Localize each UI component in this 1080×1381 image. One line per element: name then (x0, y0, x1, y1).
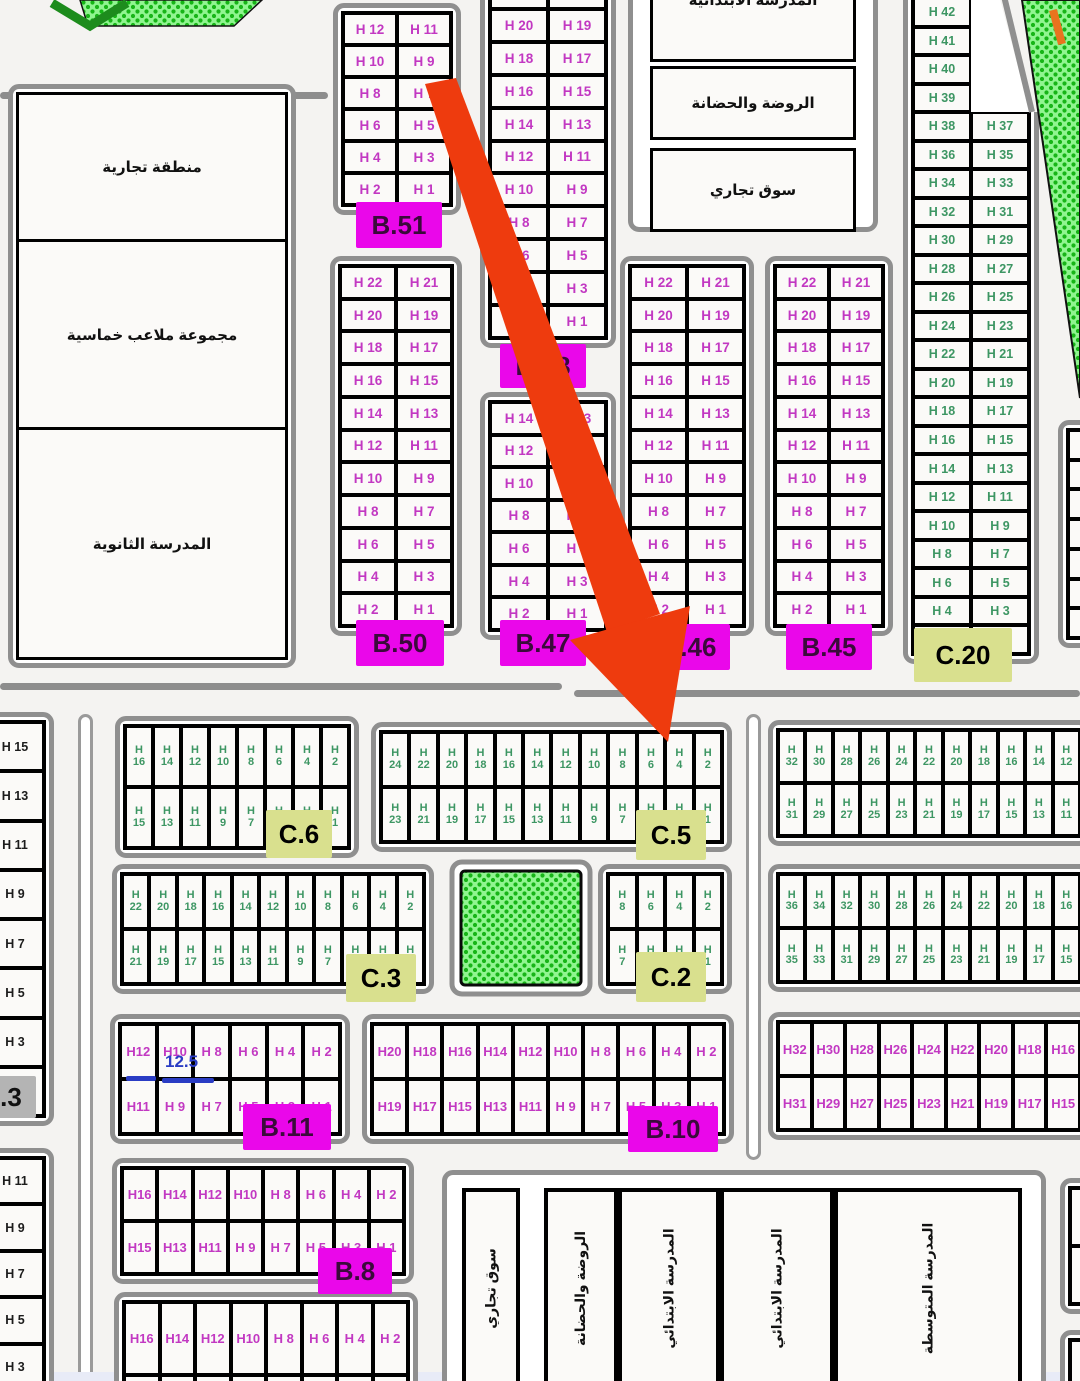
plot-cell: H 11 (971, 483, 1029, 512)
parcel-kindergarten-top: الروضة والحضانة (650, 66, 856, 140)
plot-cell (1068, 579, 1080, 609)
block-label-c2: C.2 (636, 952, 706, 1002)
plot-cell: H29 (860, 928, 887, 982)
plot-cell: H 19 (687, 299, 744, 332)
plot-cell: H 6 (618, 1024, 653, 1079)
plot-cell: H 15 (971, 426, 1029, 455)
parcel-label: منطقة تجارية (102, 158, 202, 176)
block-c20: H 42H 41H 40H 39H 38H 37H 36H 35H 34H 33… (903, 0, 1039, 664)
plot-cell: H 6 (230, 1024, 267, 1079)
plot-cell: H 12 (630, 430, 687, 463)
plot-cell: H 23 (971, 312, 1029, 341)
block-edge-right-bottom-a (1060, 1178, 1080, 1314)
plot-cell: H21 (122, 929, 149, 984)
plot-cell: H28 (833, 730, 860, 783)
plot-cell: H 20 (775, 299, 829, 332)
plot-cell: H 11 (397, 13, 451, 45)
plot-cell: H23 (912, 1076, 946, 1130)
plot-cell: H 19 (829, 299, 883, 332)
plot-cell: H28 (888, 874, 915, 928)
block-label-b46: B.46 (648, 624, 730, 670)
parcel-commercial-area: منطقة تجارية (19, 95, 285, 239)
plot-cell: H 3 (687, 561, 744, 594)
plot-cell: H7 (608, 787, 636, 842)
plot-cell: H 16 (490, 75, 548, 108)
plot-cell: H13 (478, 1079, 513, 1134)
plot-cell: H25 (915, 928, 942, 982)
plot-cell: H 8 (490, 500, 548, 533)
plot-cell: H 2 (343, 173, 397, 205)
plot-cell: H 34 (913, 169, 971, 198)
plot-cell: H13 (157, 1221, 192, 1274)
plot-cell: H 3 (0, 1344, 44, 1381)
plot-cell: H19 (979, 1076, 1013, 1130)
plot-cell: H17 (1013, 1076, 1047, 1130)
plot-cell: H 20 (630, 299, 687, 332)
block-band2-right: H36H34H32H30H28H26H24H22H20H18H16H35H33H… (768, 864, 1080, 992)
plot-cell: H 9 (396, 462, 452, 495)
plot-cell: H 2 (373, 1302, 409, 1375)
block-grid-b46: H 22H 21H 20H 19H 18H 17H 16H 15H 14H 13… (628, 264, 746, 628)
plot-cell: H31 (833, 928, 860, 982)
block-b8-south: H16H14H12H10H 8H 6H 4H 2 (114, 1292, 418, 1381)
plot-cell: H 18 (775, 331, 829, 364)
plot-cell: H 9 (971, 511, 1029, 540)
subdivision-plan: منطقة تجارية مجموعة ملاعب خماسية المدرسة… (0, 0, 1080, 1381)
plot-cell: H22 (970, 874, 997, 928)
block-label-b45: B.45 (786, 624, 872, 670)
block-edge-right-bottom-b (1060, 1330, 1080, 1381)
plot-cell: H22 (122, 874, 149, 929)
plot-cell: H 9 (548, 1079, 583, 1134)
plot-cell: H16 (1053, 874, 1080, 928)
plot-cell: H 5 (548, 532, 606, 565)
plot-cell: H16 (442, 1024, 477, 1079)
plot-cell: H 12 (343, 13, 397, 45)
plot-cell: H 35 (971, 141, 1029, 170)
plot-cell: H 20 (490, 9, 548, 42)
plot-cell: H30 (812, 1022, 846, 1076)
plot-cell: H19 (372, 1079, 407, 1134)
plot-cell: H32 (833, 874, 860, 928)
plot-cell: H 13 (396, 397, 452, 430)
plot-cell (337, 1375, 373, 1381)
block-label-b50: B.50 (356, 620, 444, 666)
plot-cell: H 20 (340, 299, 396, 332)
plot-cell: H8 (237, 726, 265, 787)
plot-cell: H 3 (829, 561, 883, 594)
plot-cell: H 18 (913, 397, 971, 426)
plot-cell: H 8 (263, 1168, 298, 1221)
plot-cell: H17 (970, 783, 997, 836)
plot-cell: H 36 (913, 141, 971, 170)
plot-cell: H 5 (687, 528, 744, 561)
plot-cell: H 10 (490, 467, 548, 500)
plot-cell: H 16 (913, 426, 971, 455)
plot-cell: H 2 (689, 1024, 724, 1079)
plot-cell: H30 (860, 874, 887, 928)
plot-cell: H 21 (829, 266, 883, 299)
plot-cell: H 18 (340, 331, 396, 364)
plot-cell (160, 1375, 196, 1381)
plot-cell: H 4 (654, 1024, 689, 1079)
plot-cell: H29 (812, 1076, 846, 1130)
block-label-c6: C.6 (266, 810, 332, 858)
plot-cell: H12 (551, 732, 579, 787)
plot-cell: H8 (314, 874, 341, 929)
school-parcel-label: المدرسة المتوسطة (919, 1222, 936, 1354)
plot-cell: H 9 (0, 1204, 44, 1250)
plot-cell: H 8 (913, 540, 971, 569)
plot-cell: H17 (407, 1079, 442, 1134)
block-b50: H 22H 21H 20H 19H 18H 17H 16H 15H 14H 13… (330, 256, 462, 636)
plot-cell: H7 (237, 787, 265, 848)
plot-cell: H17 (466, 787, 494, 842)
block-grid-b45: H 22H 21H 20H 19H 18H 17H 16H 15H 14H 13… (773, 264, 885, 628)
plot-cell: H 30 (913, 226, 971, 255)
plot-cell: H 16 (340, 364, 396, 397)
plot-cell: H 4 (630, 561, 687, 594)
plot-cell: H10 (287, 874, 314, 929)
plot-cell: H32 (778, 730, 805, 783)
plot-cell: H 38 (913, 112, 971, 141)
plot-cell: H18 (466, 732, 494, 787)
plot-cell: H30 (805, 730, 832, 783)
block-label-b11: B.11 (243, 1104, 331, 1150)
plot-cell: H 8 (583, 1024, 618, 1079)
block-left-col-top: H 15H 13H 11H 9H 7H 5H 3H 1 (0, 712, 54, 1126)
plot-cell: H19 (998, 928, 1025, 982)
plot-cell: H 2 (630, 593, 687, 626)
plot-cell: H 7 (829, 495, 883, 528)
plot-cell: H 3 (548, 272, 606, 305)
plot-cell: H23 (888, 783, 915, 836)
block-b48: H 22H 21H 20H 19H 18H 17H 16H 15H 14H 13… (480, 0, 616, 348)
plot-cell: H17 (1025, 928, 1052, 982)
plot-cell: H13 (523, 787, 551, 842)
plot-cell: H 11 (548, 435, 606, 468)
plot-cell: H 17 (548, 42, 606, 75)
plot-cell: H 14 (490, 108, 548, 141)
plot-cell: H 5 (548, 239, 606, 272)
plot-cell: H 5 (0, 968, 44, 1017)
plot-cell: H14 (232, 874, 259, 929)
plot-cell: H 4 (913, 597, 971, 626)
plot-cell: H 19 (971, 369, 1029, 398)
plot-cell: H27 (845, 1076, 879, 1130)
plot-cell: H 6 (775, 528, 829, 561)
plot-cell: H 14 (913, 454, 971, 483)
plot-cell: H 5 (396, 528, 452, 561)
plot-cell: H 22 (630, 266, 687, 299)
plot-cell: H 15 (396, 364, 452, 397)
plot-cell: H 9 (0, 870, 44, 919)
block-grid-band1-right: H32H30H28H26H24H22H20H18H16H14H12H31H29H… (776, 728, 1080, 838)
plot-cell: H10 (231, 1302, 267, 1375)
plot-cell: H 19 (396, 299, 452, 332)
block-label-c3: C.3 (346, 954, 416, 1002)
plot-cell: H 6 (298, 1168, 333, 1221)
plot-cell: H4 (665, 874, 694, 929)
plot-cell: H 4 (340, 561, 396, 594)
plot-cell: H6 (637, 732, 665, 787)
plot-cell: H 3 (548, 565, 606, 598)
plot-cell: H24 (912, 1022, 946, 1076)
block-edge-right-top (1058, 420, 1080, 648)
plot-cell: H 22 (340, 266, 396, 299)
plot-cell: H 8 (193, 1024, 230, 1079)
park-curb (452, 862, 590, 994)
plot-cell: H26 (860, 730, 887, 783)
plot-cell: H 40 (913, 55, 971, 84)
plot-cell: H 4 (775, 561, 829, 594)
block-label-b51: B.51 (356, 202, 442, 248)
plot-cell: H 15 (0, 722, 44, 771)
parcel-label: سوق تجاري (710, 181, 796, 199)
plot-cell: H 11 (396, 430, 452, 463)
plot-cell: H20 (149, 874, 176, 929)
plot-cell: H2 (694, 732, 722, 787)
parcel-label: مجموعة ملاعب خماسية (67, 326, 238, 344)
plot-cell: H15 (442, 1079, 477, 1134)
block-label-c20: C.20 (914, 628, 1012, 682)
school-parcel-4: المدرسة المتوسطة (834, 1188, 1022, 1381)
plot-cell (266, 1375, 302, 1381)
plot-cell: H 33 (971, 169, 1029, 198)
plot-cell: H 18 (490, 42, 548, 75)
plot-cell: H 11 (687, 430, 744, 463)
plot-cell: H 12 (490, 435, 548, 468)
plot-cell: H 13 (829, 397, 883, 430)
school-parcel-0: سوق تجاري (462, 1188, 520, 1381)
plot-cell: H15 (998, 783, 1025, 836)
plot-cell: H27 (888, 928, 915, 982)
plot-cell: H 7 (0, 1251, 44, 1297)
plot-cell: H11 (120, 1079, 157, 1134)
plot-cell: H 11 (0, 1158, 44, 1204)
plot-cell (1070, 1246, 1080, 1304)
plot-cell: H10 (580, 732, 608, 787)
plot-cell: H28 (845, 1022, 879, 1076)
plot-cell: H 8 (630, 495, 687, 528)
plot-cell: H7 (314, 929, 341, 984)
plot-cell: H16 (1046, 1022, 1080, 1076)
plot-cell: H9 (209, 787, 237, 848)
block-b45: H 22H 21H 20H 19H 18H 17H 16H 15H 14H 13… (765, 256, 893, 636)
plot-cell: H15 (495, 787, 523, 842)
plot-cell: H16 (204, 874, 231, 929)
plot-cell: H24 (381, 732, 409, 787)
parcel-secondary-school: المدرسة الثانوية (19, 427, 285, 657)
plot-cell: H32 (778, 1022, 812, 1076)
plot-cell: H12 (181, 726, 209, 787)
plot-cell: H16 (998, 730, 1025, 783)
plot-cell: H 9 (548, 467, 606, 500)
plot-cell: H 28 (913, 255, 971, 284)
plot-cell: H 2 (490, 305, 548, 338)
plot-cell: H29 (805, 783, 832, 836)
plot-cell: H 20 (913, 369, 971, 398)
plot-cell: H19 (149, 929, 176, 984)
plot-cell: H 12 (913, 483, 971, 512)
plot-cell: H 6 (490, 532, 548, 565)
plot-cell: H8 (608, 874, 637, 929)
plot-cell: H18 (407, 1024, 442, 1079)
plot-cell (1068, 549, 1080, 579)
block-b51: H 12H 11H 10H 9H 8H 7H 6H 5H 4H 3H 2H 1 (333, 3, 461, 215)
plot-cell: H 3 (0, 1018, 44, 1067)
plot-cell: H15 (1046, 1076, 1080, 1130)
plot-cell: H 1 (687, 593, 744, 626)
plot-cell: H13 (1025, 783, 1052, 836)
plot-cell: H 12 (775, 430, 829, 463)
plot-cell: H27 (833, 783, 860, 836)
plot-cell: H 17 (829, 331, 883, 364)
block-label-b10: B.10 (628, 1106, 718, 1152)
park-green-square (461, 871, 581, 985)
block-b47: H 14H 13H 12H 11H 10H 9H 8H 7H 6H 5H 4H … (480, 392, 616, 640)
plot-cell: H12 (193, 1168, 228, 1221)
plot-cell: H 9 (157, 1079, 194, 1134)
plot-cell: H18 (1013, 1022, 1047, 1076)
plot-cell: H 17 (687, 331, 744, 364)
plot-cell: H 7 (548, 500, 606, 533)
green-strip-top (80, 0, 262, 26)
road-median-horizontal-right (574, 690, 1080, 697)
block-grid-c20: H 42H 41H 40H 39H 38H 37H 36H 35H 34H 33… (911, 0, 1031, 656)
plot-cell: H 7 (0, 919, 44, 968)
plot-cell: H 17 (971, 397, 1029, 426)
plot-cell: H11 (513, 1079, 548, 1134)
plot-cell: H 7 (687, 495, 744, 528)
plot-cell: H15 (122, 1221, 157, 1274)
block-grid-b48: H 22H 21H 20H 19H 18H 17H 16H 15H 14H 13… (488, 0, 608, 340)
plot-cell: H 31 (971, 198, 1029, 227)
plot-cell (124, 1375, 160, 1381)
plot-cell: H 4 (337, 1302, 373, 1375)
plot-cell: H 13 (687, 397, 744, 430)
plot-cell (1070, 1340, 1080, 1381)
plot-cell: H7 (608, 929, 637, 984)
plot-cell: H11 (259, 929, 286, 984)
dimension-annotation: 12.5 (165, 1052, 198, 1072)
plot-cell: H12 (120, 1024, 157, 1079)
plot-cell: H14 (523, 732, 551, 787)
plot-cell: H10 (548, 1024, 583, 1079)
plot-cell: H 15 (687, 364, 744, 397)
plot-cell: H10 (228, 1168, 263, 1221)
plot-cell: H24 (943, 874, 970, 928)
block-public-facilities-left: منطقة تجارية مجموعة ملاعب خماسية المدرسة… (8, 84, 296, 668)
plot-cell: H 12 (490, 141, 548, 174)
plot-cell: H 18 (630, 331, 687, 364)
block-grid-band3-right: H32H30H28H26H24H22H20H18H16H31H29H27H25H… (776, 1020, 1080, 1132)
plot-cell: H 10 (340, 462, 396, 495)
block-grid-edge-right-bottom-a (1068, 1186, 1080, 1306)
plot-cell: H33 (805, 928, 832, 982)
plot-cell: H6 (265, 726, 293, 787)
plot-cell: H4 (369, 874, 396, 929)
block-label-b8: B.8 (318, 1248, 392, 1294)
plot-cell: H 7 (263, 1221, 298, 1274)
school-parcel-label: المدرسة الابتدائي (661, 1228, 678, 1348)
plot-cell: H23 (381, 787, 409, 842)
plot-cell: H 10 (343, 45, 397, 77)
school-parcel-label: الروضة والحضانة (573, 1230, 590, 1345)
plot-cell: H 4 (343, 141, 397, 173)
plot-cell: H 22 (490, 0, 548, 9)
plot-cell: H 1 (829, 593, 883, 626)
school-parcel-2: المدرسة الابتدائي (618, 1188, 720, 1381)
plot-cell: H 15 (829, 364, 883, 397)
plot-cell: H14 (160, 1302, 196, 1375)
plot-cell: H 6 (913, 568, 971, 597)
plot-cell (195, 1375, 231, 1381)
plot-cell: H24 (888, 730, 915, 783)
road-median-horizontal-left (0, 683, 562, 690)
plot-cell: H 4 (334, 1168, 369, 1221)
plot-cell: H25 (860, 783, 887, 836)
plot-cell: H2 (397, 874, 424, 929)
block-label-left-col-top: .3 (0, 1076, 36, 1118)
plot-cell: H34 (805, 874, 832, 928)
plot-cell: H9 (287, 929, 314, 984)
plot-cell: H14 (1025, 730, 1052, 783)
school-parcel-1: الروضة والحضانة (544, 1188, 618, 1381)
plot-cell: H13 (232, 929, 259, 984)
plot-cell: H 14 (490, 402, 548, 435)
plot-cell: H 4 (267, 1024, 304, 1079)
plot-cell: H14 (153, 726, 181, 787)
plot-cell: H 6 (340, 528, 396, 561)
plot-cell: H31 (778, 1076, 812, 1130)
plot-cell: H 4 (490, 565, 548, 598)
plot-cell: H6 (342, 874, 369, 929)
plot-cell: H 7 (583, 1079, 618, 1134)
plot-cell: H23 (943, 928, 970, 982)
plot-cell: H21 (970, 928, 997, 982)
plot-cell: H 8 (343, 77, 397, 109)
plot-cell: H6 (637, 874, 666, 929)
plot-cell: H10 (209, 726, 237, 787)
plot-cell: H 14 (630, 397, 687, 430)
plot-cell: H 19 (548, 9, 606, 42)
plot-cell: H 11 (829, 430, 883, 463)
plot-cell: H 10 (490, 173, 548, 206)
plot-cell: H13 (153, 787, 181, 848)
plot-cell: H 7 (396, 495, 452, 528)
plot-cell: H 11 (0, 821, 44, 870)
plot-cell: H 6 (302, 1302, 338, 1375)
parcel-market-top: سوق تجاري (650, 148, 856, 232)
plot-cell: H 5 (829, 528, 883, 561)
plot-cell: H 8 (266, 1302, 302, 1375)
plot-cell: H14 (478, 1024, 513, 1079)
plot-cell: H8 (608, 732, 636, 787)
plot-cell: H22 (409, 732, 437, 787)
plot-cell: H 5 (971, 568, 1029, 597)
plot-cell: H 9 (228, 1221, 263, 1274)
school-parcel-label: سوق تجاري (483, 1248, 500, 1328)
plot-cell (1070, 1188, 1080, 1246)
plot-cell: H35 (778, 928, 805, 982)
plot-cell: H 29 (971, 226, 1029, 255)
plot-cell: H 42 (913, 0, 971, 27)
plot-cell: H18 (970, 730, 997, 783)
plot-cell: H 13 (548, 108, 606, 141)
block-left-col-bottom: H 11H 9H 7H 5H 3 (0, 1148, 54, 1381)
plot-cell: H17 (177, 929, 204, 984)
